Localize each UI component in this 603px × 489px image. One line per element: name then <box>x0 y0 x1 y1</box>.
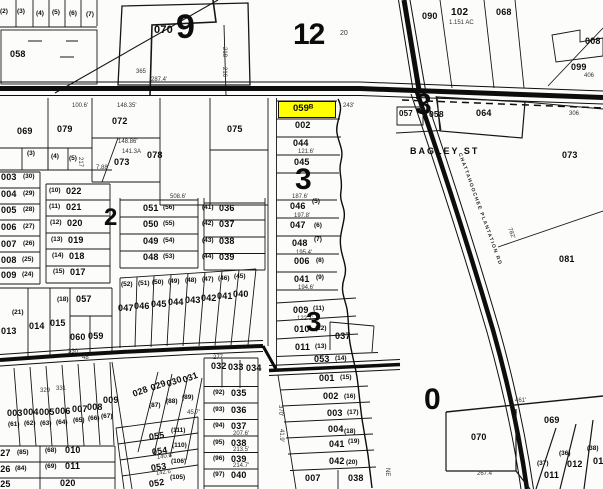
lot-number-label: (55) <box>163 221 175 228</box>
lot-number-label: (38) <box>587 446 599 453</box>
lot-number-label: (3) <box>27 151 35 158</box>
lot-number-label: (28) <box>23 207 35 214</box>
parcel-label: 075 <box>227 125 243 134</box>
parcel-label: 008 <box>87 403 103 412</box>
parcel-label: 002 <box>295 121 311 130</box>
lot-number-label: (42) <box>202 221 214 228</box>
parcel-label: 069 <box>17 127 33 136</box>
parcel-label: 039 <box>219 253 235 262</box>
parcel-label: 031 <box>181 371 199 385</box>
parcel-label: 019 <box>68 236 84 245</box>
parcel-label: 047 <box>118 304 134 313</box>
dimension-label: 217 <box>77 157 83 167</box>
parcel-label: 011 <box>65 462 80 471</box>
parcel-label: 053 <box>314 355 330 364</box>
lot-number-label: (85) <box>17 450 29 457</box>
parcel-label: 079 <box>57 125 73 134</box>
parcel-label: 013 <box>1 327 17 336</box>
parcel-label: 029 <box>149 379 167 393</box>
district-number: 9 <box>176 10 194 44</box>
dimension-label: 207.6' <box>233 431 249 437</box>
lot-number-label: (36) <box>559 451 571 458</box>
parcel-label: 037 <box>219 220 235 229</box>
parcel-label: 060 <box>70 333 86 342</box>
parcel-label: 020 <box>60 479 76 488</box>
lot-number-label: (5) <box>52 10 60 17</box>
dimension-label: 267.4' <box>477 471 493 477</box>
parcel-label: 099 <box>571 63 587 72</box>
lot-number-label: (4) <box>36 11 44 18</box>
lot-number-label: (16) <box>344 394 356 401</box>
parcel-label: 090 <box>422 12 438 21</box>
parcel-label: 038 <box>219 237 235 246</box>
lot-number-label: (26) <box>23 241 35 248</box>
lot-number-label: (65) <box>73 418 85 425</box>
lot-number-label: (51) <box>138 281 150 288</box>
dimension-label: 461' <box>515 398 526 404</box>
parcel-label: 025 <box>0 480 11 489</box>
lot-number-label: (24) <box>22 272 34 279</box>
lot-number-label: (84) <box>15 466 27 473</box>
parcel-label: 038 <box>348 474 364 483</box>
parcel-label: 040 <box>233 290 249 299</box>
lot-number-label: (3) <box>17 9 25 16</box>
parcel-label: 034 <box>246 364 262 373</box>
parcel-label: 068 <box>496 8 512 17</box>
lot-number-label: (37) <box>537 461 549 468</box>
parcel-label: 021 <box>66 203 82 212</box>
lot-number-label: (13) <box>315 344 327 351</box>
parcel-label: 057 <box>76 295 92 304</box>
parcel-label: 058 <box>10 50 26 59</box>
parcel-label: 057 <box>399 110 413 118</box>
lot-number-label: (64) <box>56 420 68 427</box>
parcel-label: 012 <box>567 460 583 469</box>
lot-number-label: (2) <box>0 9 8 16</box>
lot-number-label: (10) <box>49 188 61 195</box>
parcel-label: 081 <box>559 255 575 264</box>
parcel-label: 030 <box>165 375 183 389</box>
parcel-label: 049 <box>143 237 159 246</box>
lot-number-label: (52) <box>121 282 133 289</box>
district-number: 2 <box>104 206 116 230</box>
dimension-label: NE <box>384 468 390 476</box>
lot-number-label: (25) <box>22 257 34 264</box>
lot-number-label: (106) <box>171 459 186 466</box>
parcel-label: 037 <box>231 422 247 431</box>
parcel-label: 064 <box>476 109 492 118</box>
lot-number-label: (45) <box>234 274 246 281</box>
parcel-label: 032 <box>211 362 227 371</box>
lot-number-label: (47) <box>202 277 214 284</box>
parcel-label: 078 <box>147 151 163 160</box>
parcel-label: 070 <box>471 433 487 442</box>
lot-number-label: (18) <box>344 429 356 436</box>
lot-number-label: (18) <box>57 297 69 304</box>
lot-number-label: (14) <box>52 253 64 260</box>
lot-number-label: (15) <box>53 269 65 276</box>
lot-number-label: (8) <box>316 258 324 265</box>
lot-number-label: (61) <box>8 422 20 429</box>
parcel-map: (2)(3)(4)(5)(6)(7)05807091220365287.4'21… <box>0 0 603 489</box>
lot-number-label: (88) <box>166 399 178 406</box>
parcel-label: 052 <box>148 478 165 489</box>
parcel-label: 011 <box>544 471 559 480</box>
parcel-label: 007 <box>72 405 88 414</box>
lot-number-label: (110) <box>172 443 187 450</box>
dimension-label: 41.9' <box>278 429 284 442</box>
lot-number-label: (44) <box>202 254 214 261</box>
parcel-label: 035 <box>231 389 247 398</box>
parcel-label: 043 <box>185 296 201 305</box>
parcel-label: 017 <box>70 268 86 277</box>
dimension-label: 243' <box>343 103 354 109</box>
street-name: CHATTAHOOCHEE PLANTATION RD <box>457 153 502 267</box>
lot-number-label: (93) <box>213 407 225 414</box>
lot-number-label: (66) <box>88 416 100 423</box>
parcel-label: 010 <box>65 446 81 455</box>
dimension-label: 329 <box>40 388 50 394</box>
parcel-label: 037 <box>335 332 351 341</box>
dimension-label: 20 <box>340 30 348 37</box>
lot-number-label: (20) <box>346 460 358 467</box>
lot-number-label: (111) <box>171 428 185 435</box>
dimension-label: 370' <box>277 405 283 416</box>
lot-number-label: (97) <box>213 472 225 479</box>
lot-number-label: (54) <box>163 238 175 245</box>
parcel-label: 042 <box>201 294 217 303</box>
lot-number-label: (27) <box>23 224 35 231</box>
lot-number-label: (43) <box>202 238 214 245</box>
parcel-labels-layer: (2)(3)(4)(5)(6)(7)05807091220365287.4'21… <box>0 0 603 489</box>
parcel-label: 004 <box>328 425 344 434</box>
parcel-label: 070 <box>154 25 173 36</box>
lot-number-label: (67) <box>101 414 113 421</box>
dimension-label: 148.35' <box>117 103 137 109</box>
parcel-label: 022 <box>66 187 82 196</box>
parcel-label: 058 <box>429 110 444 119</box>
parcel-label: 036 <box>231 406 247 415</box>
selected-parcel-label: 059ᴮ <box>293 104 313 114</box>
lot-number-label: (6) <box>314 223 322 230</box>
lot-number-label: (5) <box>312 199 320 206</box>
dimension-label: 306 <box>569 111 579 117</box>
dimension-label: 148.86' <box>118 139 138 145</box>
parcel-label: 004 <box>1 190 17 199</box>
parcel-label: 046 <box>290 202 306 211</box>
parcel-label: 009 <box>103 396 119 405</box>
parcel-label: 044 <box>293 139 309 148</box>
parcel-label: 005 <box>39 408 55 417</box>
lot-number-label: (30) <box>23 174 35 181</box>
dimension-label: 121.6' <box>298 149 314 155</box>
lot-number-label: (63) <box>40 421 52 428</box>
lot-number-label: (15) <box>340 375 352 382</box>
parcel-label: 048 <box>143 253 159 262</box>
lot-number-label: (13) <box>51 237 63 244</box>
parcel-label: 004 <box>23 408 39 417</box>
lot-number-label: (41) <box>202 205 214 212</box>
parcel-label: 008 <box>585 37 601 46</box>
lot-number-label: (53) <box>163 254 175 261</box>
parcel-label: 006 <box>55 407 71 416</box>
lot-number-label: (50) <box>152 280 164 287</box>
parcel-label: 069 <box>544 416 560 425</box>
parcel-label: 006 <box>1 223 17 232</box>
parcel-label: 102 <box>451 8 468 18</box>
parcel-label: 036 <box>219 204 235 213</box>
parcel-label: 014 <box>29 322 45 331</box>
parcel-label: 050 <box>143 220 159 229</box>
parcel-label: 009 <box>1 271 17 280</box>
lot-number-label: (11) <box>49 204 60 211</box>
lot-number-label: (6) <box>69 11 77 18</box>
dimension-label: 48' <box>82 355 90 361</box>
parcel-label: 003 <box>1 173 17 182</box>
lot-number-label: (87) <box>149 403 161 410</box>
parcel-label: 010 <box>593 457 603 466</box>
parcel-label: 015 <box>50 319 66 328</box>
lot-number-label: (69) <box>45 464 57 471</box>
parcel-label: 055 <box>148 431 165 442</box>
parcel-label: 040 <box>231 471 247 480</box>
dimension-label: 331 <box>56 386 66 392</box>
lot-number-label: (7) <box>314 237 322 244</box>
parcel-label: 027 <box>0 449 11 458</box>
dimension-label: 7.88' <box>96 165 109 171</box>
dimension-label: 406 <box>584 73 594 79</box>
dimension-label: 100.6' <box>72 103 88 109</box>
lot-number-label: (48) <box>185 278 197 285</box>
dimension-label: 187.6' <box>292 194 308 200</box>
parcel-label: 028 <box>131 385 149 399</box>
lot-number-label: (17) <box>347 410 359 417</box>
lot-number-label: (5) <box>69 156 77 163</box>
parcel-label: 073 <box>114 158 130 167</box>
lot-number-label: (29) <box>23 191 35 198</box>
district-number: 3 <box>306 308 321 336</box>
parcel-label: 008 <box>1 256 17 265</box>
lot-number-label: (62) <box>24 421 36 428</box>
parcel-label: 033 <box>228 363 244 372</box>
lot-number-label: (12) <box>50 220 62 227</box>
lot-number-label: (89) <box>182 395 194 402</box>
district-number: 12 <box>293 20 324 50</box>
dimension-label: 141.3A <box>122 149 141 155</box>
lot-number-label: (14) <box>335 356 347 363</box>
lot-number-label: (49) <box>168 279 180 286</box>
lot-number-label: (46) <box>218 276 230 283</box>
parcel-label: 041 <box>217 292 233 301</box>
lot-number-label: (56) <box>163 205 175 212</box>
parcel-label: 072 <box>112 117 128 126</box>
lot-number-label: (95) <box>213 440 225 447</box>
parcel-label: 026 <box>0 465 11 474</box>
parcel-label: 006 <box>294 257 310 266</box>
parcel-label: 042 <box>329 457 345 466</box>
parcel-label: 044 <box>168 298 184 307</box>
dimension-label: 365 <box>136 69 146 75</box>
dimension-label: 216 <box>221 67 227 77</box>
lot-number-label: (21) <box>12 310 24 317</box>
parcel-label: 001 <box>319 374 335 383</box>
parcel-label: 048 <box>292 239 308 248</box>
lot-number-label: (19) <box>348 439 360 446</box>
lot-number-label: (96) <box>213 456 225 463</box>
street-name: BAGLEY ST <box>410 147 479 156</box>
lot-number-label: (105) <box>170 475 185 482</box>
parcel-label: 002 <box>323 392 339 401</box>
dimension-label: 213.5' <box>233 447 249 453</box>
dimension-label: 214.7' <box>233 463 249 469</box>
lot-number-label: (9) <box>316 275 324 282</box>
parcel-label: 003 <box>327 409 343 418</box>
dimension-label: 287.4' <box>151 77 167 83</box>
lot-number-label: (7) <box>86 12 94 19</box>
parcel-label: 051 <box>143 204 159 213</box>
dimension-label: 330 <box>68 349 78 355</box>
dimension-label: 45.7' <box>187 410 200 416</box>
parcel-label: 041 <box>294 275 310 284</box>
parcel-label: 003 <box>7 409 23 418</box>
parcel-label: 011 <box>295 343 310 352</box>
parcel-label: 005 <box>1 206 17 215</box>
parcel-label: 047 <box>290 221 306 230</box>
parcel-label: 059 <box>88 332 104 341</box>
parcel-label: 007 <box>1 240 17 249</box>
parcel-label: 045 <box>151 300 167 309</box>
parcel-label: 020 <box>67 219 83 228</box>
lot-number-label: (4) <box>51 154 59 161</box>
dimension-label: 218 <box>221 47 227 57</box>
lot-number-label: (92) <box>213 390 225 397</box>
district-number: 0 <box>424 385 440 415</box>
parcel-label: 073 <box>562 151 578 160</box>
dimension-label: 197.8' <box>294 213 310 219</box>
parcel-label: 018 <box>69 252 85 261</box>
lot-number-label: (94) <box>213 423 225 430</box>
dimension-label: 508.6' <box>170 194 186 200</box>
lot-number-label: (68) <box>45 448 57 455</box>
parcel-label: 007 <box>305 474 321 483</box>
parcel-label: 046 <box>134 302 150 311</box>
parcel-label: 041 <box>329 440 345 449</box>
dimension-label: 1.151 AC <box>449 20 474 26</box>
dimension-label: 194.6' <box>298 285 314 291</box>
district-number: 3 <box>295 165 311 195</box>
dimension-label: 782' <box>506 227 515 240</box>
